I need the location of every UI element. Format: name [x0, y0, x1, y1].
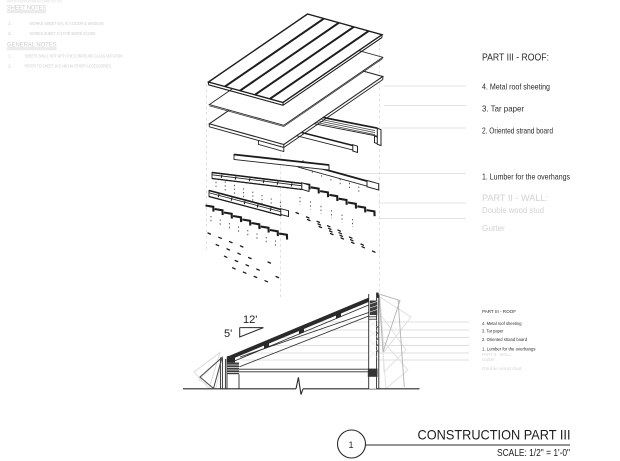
- svg-text:SHEETS SHALL NOT WITH THE COMP: SHEETS SHALL NOT WITH THE COMPOUND GLASS…: [25, 54, 123, 59]
- svg-text:1: 1: [348, 440, 353, 450]
- svg-text:Double wood stud: Double wood stud: [482, 206, 544, 215]
- svg-text:CONSTRUCTION PART III: CONSTRUCTION PART III: [418, 427, 571, 443]
- svg-text:3. Tar paper: 3. Tar paper: [482, 105, 524, 114]
- svg-text:Double wood stud: Double wood stud: [482, 366, 522, 371]
- svg-text:PART III - ROOF:: PART III - ROOF:: [482, 52, 549, 64]
- svg-text:Gutter: Gutter: [482, 357, 495, 362]
- svg-text:GENERAL NOTES: GENERAL NOTES: [7, 42, 57, 49]
- svg-text:Gutter: Gutter: [482, 224, 505, 233]
- svg-text:PART III - ROOF: PART III - ROOF: [482, 309, 516, 314]
- svg-text:2.: 2.: [8, 64, 12, 69]
- svg-text:2. Oriented strand board: 2. Oriented strand board: [482, 337, 527, 342]
- svg-text:2. Oriented strand board: 2. Oriented strand board: [482, 127, 553, 136]
- svg-text:1.: 1.: [8, 54, 12, 59]
- svg-text:PART II - WALL:: PART II - WALL:: [482, 193, 548, 204]
- svg-text:SCALE: 1/2" = 1'-0": SCALE: 1/2" = 1'-0": [497, 448, 570, 459]
- svg-text:PART III CONSTRUCTION DOCUMENT: PART III CONSTRUCTION DOCUMENT SET 2019: [7, 0, 62, 4]
- svg-text:SHEET NOTES: SHEET NOTES: [7, 5, 46, 12]
- svg-text:12': 12': [243, 314, 257, 326]
- svg-text:1. Lumber for the overhangs: 1. Lumber for the overhangs: [482, 173, 570, 182]
- svg-text:4. Metal roof sheeting: 4. Metal roof sheeting: [482, 321, 522, 326]
- svg-text:2.: 2.: [8, 31, 12, 36]
- svg-text:5': 5': [224, 328, 232, 340]
- svg-text:3. Tar paper: 3. Tar paper: [482, 329, 504, 334]
- svg-text:1.: 1.: [8, 21, 12, 26]
- svg-text:WORKS SHEET S-3 FOR MORE SCHED: WORKS SHEET S-3 FOR MORE SCHED: [30, 31, 97, 36]
- svg-text:REFER TO SHEET W-5 AND IN OTHE: REFER TO SHEET W-5 AND IN OTHER ACCESSOR…: [25, 64, 112, 69]
- svg-text:4. Metal roof sheeting: 4. Metal roof sheeting: [482, 83, 550, 92]
- svg-text:1. Lumber for the overhangs: 1. Lumber for the overhangs: [482, 347, 536, 352]
- svg-text:WORKS SHEET W-1 IS A DOOR & WI: WORKS SHEET W-1 IS A DOOR & WINDOW: [30, 21, 105, 26]
